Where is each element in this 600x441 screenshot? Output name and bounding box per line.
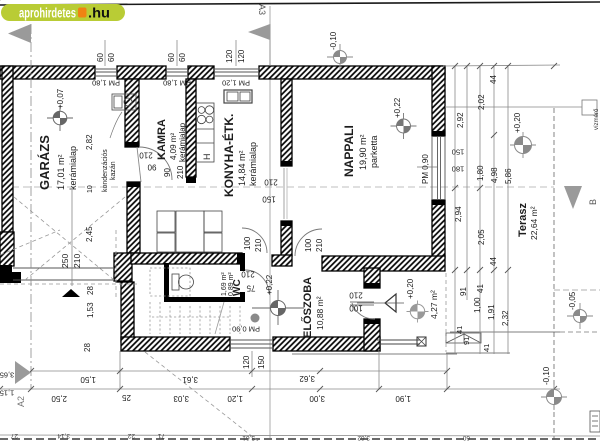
- svg-text:4,27 m²: 4,27 m²: [429, 290, 439, 319]
- svg-text:2,50: 2,50: [51, 394, 67, 403]
- svg-text:PM 0,90: PM 0,90: [421, 154, 430, 184]
- svg-text:aprohirdetes: aprohirdetes: [19, 6, 76, 21]
- svg-text:150: 150: [452, 148, 465, 157]
- svg-text:60: 60: [96, 53, 105, 62]
- svg-text:A3: A3: [257, 4, 267, 15]
- svg-text:28: 28: [86, 286, 95, 295]
- svg-text:Terasz: Terasz: [517, 202, 529, 237]
- svg-text:2,05: 2,05: [477, 229, 486, 245]
- svg-text:vízmérő: vízmérő: [594, 108, 600, 130]
- svg-text:210: 210: [315, 238, 324, 252]
- svg-text:210: 210: [139, 151, 153, 160]
- svg-text:100: 100: [243, 236, 252, 250]
- svg-text:10,88 m²: 10,88 m²: [315, 296, 325, 330]
- svg-text:44: 44: [489, 75, 498, 84]
- svg-text:KONYHA-ÉTK.: KONYHA-ÉTK.: [221, 114, 236, 197]
- svg-text:3,03: 3,03: [173, 394, 189, 403]
- svg-text:14,84 m²: 14,84 m²: [237, 150, 247, 186]
- svg-text:210: 210: [72, 254, 82, 268]
- svg-text:10: 10: [87, 185, 94, 193]
- svg-text:1,00: 1,00: [473, 297, 482, 313]
- svg-text:B: B: [588, 199, 598, 205]
- svg-text:120: 120: [225, 49, 234, 63]
- svg-text:1,20: 1,20: [227, 394, 243, 403]
- svg-text:60: 60: [462, 434, 470, 441]
- svg-text:91: 91: [462, 337, 471, 345]
- svg-text:41: 41: [476, 284, 485, 293]
- svg-text:PM 0,90: PM 0,90: [232, 325, 260, 334]
- svg-text:kerámialap: kerámialap: [248, 142, 258, 186]
- svg-text:NAPPALI: NAPPALI: [342, 125, 356, 177]
- svg-text:2,94: 2,94: [454, 206, 463, 222]
- svg-text:PM 1,80: PM 1,80: [163, 79, 191, 88]
- svg-text:41: 41: [482, 344, 491, 352]
- svg-text:A2: A2: [16, 396, 26, 407]
- svg-text:210: 210: [349, 291, 363, 300]
- svg-text:75: 75: [246, 284, 255, 293]
- svg-text:71: 71: [157, 432, 165, 439]
- svg-text:91: 91: [459, 287, 468, 296]
- svg-text:210: 210: [264, 178, 278, 187]
- svg-text:+0,07: +0,07: [56, 88, 65, 109]
- svg-text:120: 120: [242, 355, 251, 369]
- svg-text:210: 210: [176, 165, 185, 179]
- svg-text:19,90 m²: 19,90 m²: [358, 134, 368, 170]
- svg-text:60: 60: [178, 53, 187, 62]
- svg-text:5,86: 5,86: [504, 168, 513, 184]
- svg-text:3,65: 3,65: [0, 371, 14, 380]
- svg-text:60: 60: [167, 53, 176, 62]
- svg-text:ELŐSZOBA: ELŐSZOBA: [301, 277, 314, 338]
- svg-text:210: 210: [241, 270, 255, 279]
- svg-text:90: 90: [147, 163, 156, 172]
- svg-text:+0,22: +0,22: [265, 274, 274, 295]
- svg-text:4,98: 4,98: [490, 167, 499, 183]
- svg-text:kazán: kazán: [110, 161, 117, 180]
- svg-text:GARÁZS: GARÁZS: [37, 135, 52, 190]
- svg-text:150: 150: [262, 195, 276, 204]
- svg-text:250: 250: [60, 254, 70, 268]
- svg-text:+0,20: +0,20: [406, 278, 415, 299]
- svg-text:-0,05: -0,05: [568, 291, 577, 310]
- svg-text:4,09 m²: 4,09 m²: [169, 133, 178, 160]
- svg-text:+0,22: +0,22: [393, 97, 402, 118]
- svg-text:1,91: 1,91: [487, 304, 496, 320]
- svg-text:kerámialap: kerámialap: [68, 146, 78, 190]
- svg-text:25: 25: [122, 393, 131, 402]
- svg-text:PM 1,80: PM 1,80: [92, 79, 120, 88]
- svg-text:17,01 m²: 17,01 m²: [56, 154, 66, 190]
- svg-text:3,61: 3,61: [242, 434, 255, 441]
- svg-text:2,92: 2,92: [456, 112, 465, 128]
- svg-text:1,69 m²: 1,69 m²: [221, 272, 228, 296]
- svg-text:3,62: 3,62: [357, 434, 370, 441]
- svg-text:3,61: 3,61: [182, 375, 198, 384]
- svg-text:27: 27: [10, 432, 18, 439]
- svg-text:kondenzációs: kondenzációs: [102, 149, 109, 192]
- svg-text:90: 90: [163, 168, 172, 177]
- svg-text:+0,20: +0,20: [513, 112, 522, 133]
- svg-text:210: 210: [254, 238, 263, 252]
- svg-text:PM 1,20: PM 1,20: [222, 79, 250, 88]
- svg-text:3,14: 3,14: [57, 432, 70, 439]
- svg-text:.hu: .hu: [88, 6, 110, 21]
- svg-text:2,82: 2,82: [85, 134, 94, 150]
- svg-text:41: 41: [455, 326, 464, 334]
- svg-text:0,89 m²: 0,89 m²: [228, 272, 235, 296]
- svg-text:60: 60: [107, 53, 116, 62]
- svg-text:44: 44: [489, 257, 498, 266]
- svg-text:28: 28: [83, 343, 92, 352]
- svg-text:22,64 m²: 22,64 m²: [529, 206, 539, 240]
- svg-text:120: 120: [237, 49, 246, 63]
- svg-text:KAMRA: KAMRA: [156, 119, 168, 160]
- svg-text:2,32: 2,32: [501, 310, 510, 326]
- svg-text:100: 100: [304, 238, 313, 252]
- svg-text:22: 22: [127, 432, 135, 439]
- svg-text:H: H: [202, 154, 212, 161]
- svg-text:-0,10: -0,10: [542, 366, 551, 385]
- svg-text:100: 100: [349, 304, 363, 313]
- svg-text:kerámialap: kerámialap: [178, 122, 187, 162]
- svg-text:3,00: 3,00: [309, 394, 325, 403]
- svg-text:parketta: parketta: [369, 135, 379, 168]
- svg-text:1,90: 1,90: [395, 394, 411, 403]
- svg-text:-0,10: -0,10: [329, 31, 338, 50]
- svg-text:3,62: 3,62: [299, 374, 315, 383]
- svg-text:2,02: 2,02: [477, 94, 486, 110]
- svg-text:180: 180: [452, 165, 465, 174]
- svg-text:1,53: 1,53: [86, 302, 95, 318]
- svg-text:1,50: 1,50: [80, 375, 96, 384]
- svg-text:150: 150: [257, 355, 266, 369]
- svg-text:1,80: 1,80: [476, 165, 485, 181]
- svg-text:2,45: 2,45: [85, 226, 94, 242]
- svg-text:1,15: 1,15: [0, 389, 14, 398]
